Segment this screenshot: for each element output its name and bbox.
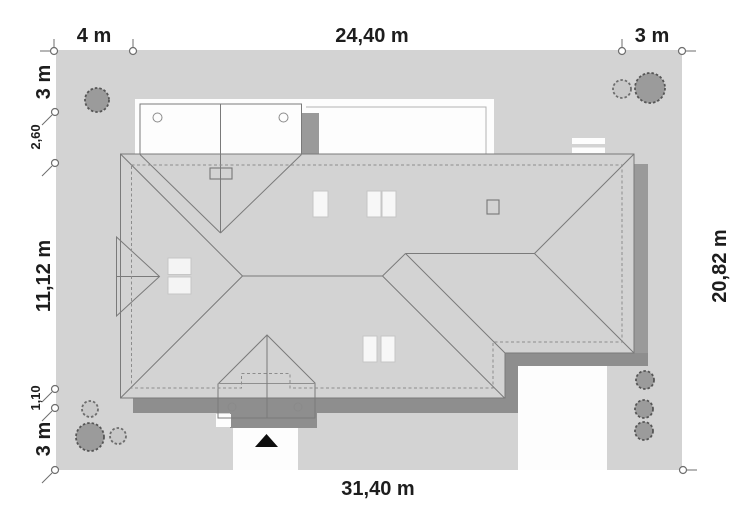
dim-top-right: 3 m: [635, 25, 669, 47]
terrace-step: [572, 138, 605, 144]
shadow-step: [505, 356, 518, 398]
dim-left-3: 11,12 m: [33, 240, 55, 312]
shadow-garage-side: [302, 113, 319, 154]
terrace-step: [572, 148, 605, 154]
shadow-wing-bottom: [505, 353, 648, 366]
chimney-white: [168, 277, 191, 294]
roof-window: [382, 191, 396, 217]
chimney-white: [168, 258, 191, 275]
site-plan-page: 4 m 24,40 m 3 m 31,40 m 3 m 2,60 11,12 m…: [0, 0, 734, 525]
dim-right: 20,82 m: [709, 229, 731, 302]
bush-icon: [636, 371, 654, 389]
bush-icon: [110, 428, 126, 444]
dim-left-1: 3 m: [33, 65, 55, 99]
dimension-tick-icon: [52, 386, 59, 393]
dim-bottom: 31,40 m: [341, 478, 414, 500]
dimension-tick-icon: [52, 160, 59, 167]
driveway-area: [518, 365, 607, 470]
bush-icon: [635, 422, 653, 440]
dimension-tick-icon: [52, 467, 59, 474]
bush-icon: [635, 400, 653, 418]
dimension-tick-icon: [680, 467, 687, 474]
tree-icon: [76, 423, 104, 451]
dimension-tick-icon: [619, 48, 626, 55]
dim-top-center: 24,40 m: [335, 25, 408, 47]
dimension-tick-icon: [52, 405, 59, 412]
roof-window: [363, 336, 377, 362]
dim-top-left: 4 m: [77, 25, 111, 47]
dim-left-2: 2,60: [28, 124, 43, 149]
shadow-right: [634, 164, 648, 359]
dim-left-4: 1,10: [28, 385, 43, 410]
shadow-porch: [230, 413, 317, 428]
bush-icon: [82, 401, 98, 417]
roof-window: [381, 336, 395, 362]
dim-left-5: 3 m: [33, 422, 55, 456]
site-plan-drawing: 4 m 24,40 m 3 m 31,40 m 3 m 2,60 11,12 m…: [0, 0, 734, 525]
tree-icon: [635, 73, 665, 103]
dimension-tick-icon: [51, 48, 58, 55]
tree-icon: [613, 80, 631, 98]
dimension-tick-icon: [130, 48, 137, 55]
dimension-tick-icon: [679, 48, 686, 55]
roof-window: [367, 191, 381, 217]
dimension-tick-icon: [52, 109, 59, 116]
tree-icon: [85, 88, 109, 112]
shadow-bottom: [133, 398, 518, 413]
roof-window: [313, 191, 328, 217]
